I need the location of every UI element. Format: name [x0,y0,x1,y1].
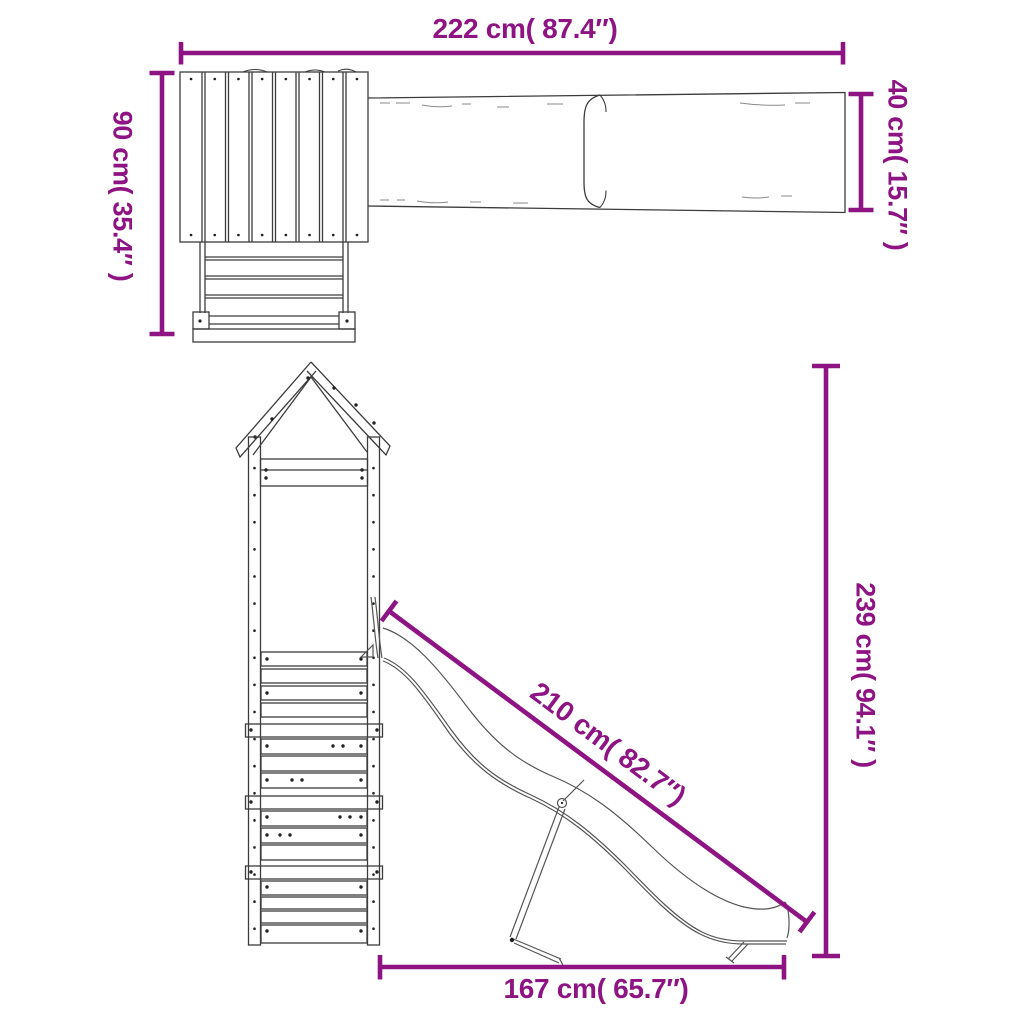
dim-line-slide-length [382,601,815,932]
plan-roof [180,69,368,242]
product-dimension-diagram: 222 cm( 87.4″) 40 cm( 15.7″ ) 90 cm( 35.… [0,0,1024,1024]
slide-support-leg [510,780,584,965]
dim-line-tower-depth [150,73,175,334]
elevation-tower [246,437,383,945]
dim-line-overall-width [181,42,843,65]
dim-label-overall-width: 222 cm( 87.4″) [432,13,617,45]
dim-line-overall-height [812,366,840,956]
technical-drawing-svg [0,0,1024,1024]
dim-line-slide-width [849,94,874,210]
dim-label-footprint-length: 167 cm( 65.7″) [503,973,688,1005]
elevation-slide [361,597,789,963]
wood-grain [380,103,810,203]
plan-view [180,69,845,342]
plan-slide [368,93,845,213]
elevation-view [236,362,789,965]
dim-label-overall-height: 239 cm( 94.1″ ) [850,582,881,768]
plan-ladder [193,242,355,342]
dim-label-tower-depth: 90 cm( 35.4″ ) [107,111,138,282]
dim-label-slide-width: 40 cm( 15.7″ ) [882,80,913,251]
